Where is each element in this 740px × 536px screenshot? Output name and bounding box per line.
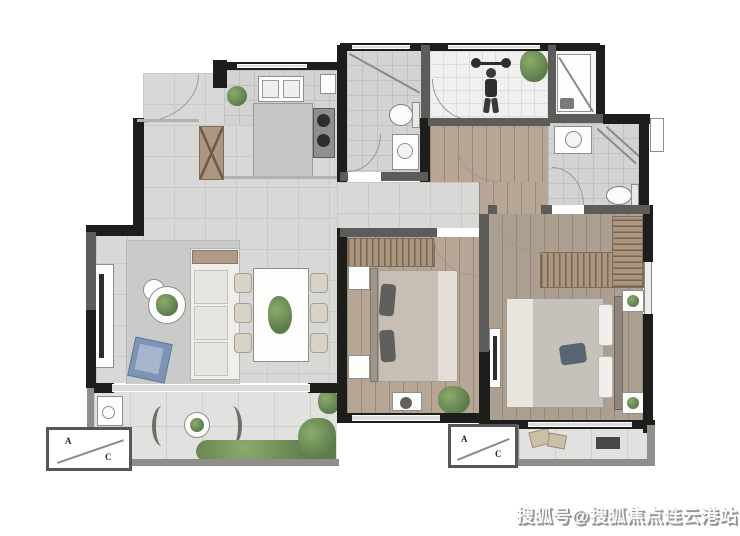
bedroom2-wardrobe [347,238,435,267]
master-bed-sheet [507,299,533,407]
master-toilet [606,186,632,205]
gym-plant [520,50,548,82]
fridge-cabinet [199,126,224,180]
wall [488,205,497,214]
bedroom2-nightstand [348,266,370,290]
nightstand-plant [627,397,639,409]
kitchen-sink-basin [283,80,300,98]
wall [340,228,437,237]
stove-burner [317,134,330,147]
wall [584,205,650,214]
dining-chair [310,303,328,323]
bathroom-sink [397,143,413,159]
wall [340,172,348,181]
dining-chair [234,273,252,293]
bedroom2-bed-sheet [438,271,457,381]
ac-label-a: A [65,436,72,446]
kitchen-threshold [224,176,337,179]
master-throw-pillow [559,342,588,365]
sofa-console-table [192,250,238,264]
dining-chair [234,333,252,353]
wall [381,172,428,181]
dining-chair [234,303,252,323]
wall [86,310,96,388]
master-sink [565,131,582,148]
master-toilet-tank [631,184,639,207]
kitchen-sink-basin [262,80,279,98]
gym-equipment-icon [470,54,512,116]
master-balcony-chair [547,433,567,450]
sofa-cushion [194,270,228,304]
laundry-item [560,98,574,109]
gym-window [448,45,540,49]
kitchen-plant [227,86,247,106]
balcony-table-plant [190,418,204,432]
wall [643,314,653,433]
ac-label-c: C [105,452,112,462]
sofa-cushion [194,306,228,340]
wall [428,118,550,126]
ac-platform-middle: A C [448,424,518,468]
bedroom2-window [352,415,440,421]
balcony-greenery [298,418,336,460]
wall [308,383,340,393]
wall [86,232,96,314]
living-balcony-window [112,384,310,392]
master-pillow [598,356,613,398]
wall [548,114,608,123]
bedroom2-pillow [379,330,396,363]
tv-screen [99,274,104,358]
ac-label-a: A [461,434,468,444]
wall [479,214,489,352]
ac-platform-left: A C [46,427,132,471]
kitchen-window [237,64,307,68]
dining-chair [310,273,328,293]
coffee-table-plant [156,294,178,316]
ac-label-c: C [495,449,502,459]
wall [337,45,347,182]
bedroom2-pillow [379,283,397,316]
dining-chair [310,333,328,353]
watermark-text: 搜狐号@搜狐焦点连云港站 [516,503,738,528]
dining-centerpiece [268,296,292,334]
master-balcony-wall [647,425,655,466]
nightstand-plant [627,295,639,307]
kitchen-counter [253,103,313,177]
toilet-tank [412,102,420,128]
wall [596,45,605,120]
bedroom2-headboard [370,268,378,382]
master-window [644,262,652,314]
hallway-floor [337,182,479,228]
entry-threshold [137,119,199,122]
wall [541,205,552,214]
balcony-basin-bowl [102,406,115,419]
stove-burner [317,114,330,127]
bedroom2-plant [438,386,470,414]
master-balcony-wall [515,459,655,466]
bathroom-window [352,45,410,49]
tv-console [94,264,114,368]
balcony-chair [152,406,172,446]
floor-plan: A C A C 搜狐号@搜狐焦点连云港站 [0,0,740,536]
sofa-cushion [194,342,228,376]
bedroom2-nightstand [348,355,370,379]
wall [133,118,144,232]
exterior-ledge [650,118,664,152]
wall [421,45,430,125]
master-tv-screen [493,336,497,380]
master-wardrobe-column [612,216,643,288]
wall [639,122,649,210]
toilet [389,104,413,126]
master-bottom-window [528,422,632,427]
master-balcony-mat [596,437,620,449]
wall [548,45,556,118]
kitchen-appliance [320,74,336,94]
master-pillow [598,304,613,346]
bedroom2-desk-chair [400,397,412,409]
